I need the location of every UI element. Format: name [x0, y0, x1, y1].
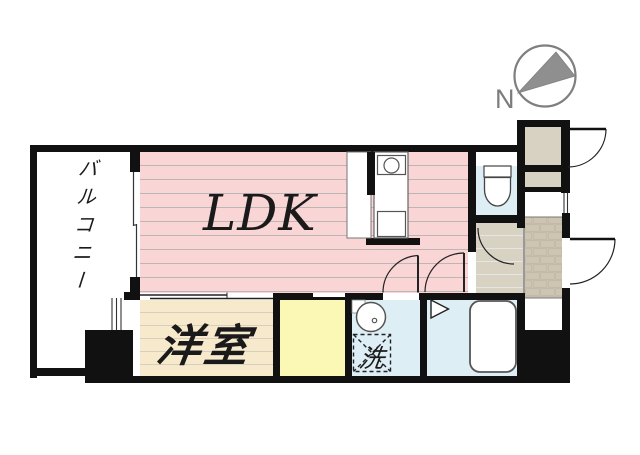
ldk-label: LDK: [203, 184, 317, 242]
washbasin-icon: [357, 303, 386, 332]
doors: [383, 129, 615, 293]
laundry-label: 洗: [350, 339, 393, 375]
window-balcony-ldk-icon: [134, 172, 137, 277]
window-balcony-western-icon: [112, 298, 121, 330]
hall-door-arc: [425, 253, 464, 292]
north-needle-icon: [518, 52, 575, 93]
floor-plan: バルコニー LDK 洋室 洗 N: [0, 0, 640, 455]
toilet-bowl-icon: [485, 178, 511, 207]
sink-basin-icon: [384, 158, 399, 173]
sliding-door-icon: [140, 293, 273, 300]
bathtub-icon: [470, 301, 516, 372]
entry-brick-floor: [525, 217, 562, 298]
toilet-tank-icon: [484, 166, 511, 177]
compass-icon: [515, 46, 576, 107]
storage-door-arc: [568, 129, 606, 167]
washroom-door-arc: [383, 256, 418, 293]
bath-door-triangle-icon: [431, 300, 449, 318]
toilet-door-arc: [478, 228, 514, 264]
western-room-label: 洋室: [154, 310, 257, 374]
wall-kitchen-stub: [367, 152, 375, 195]
stove-icon: [378, 212, 406, 237]
entry-door-arc: [570, 239, 615, 284]
compass-north-label: N: [495, 84, 515, 115]
window-right-wall-icon: [564, 193, 568, 213]
